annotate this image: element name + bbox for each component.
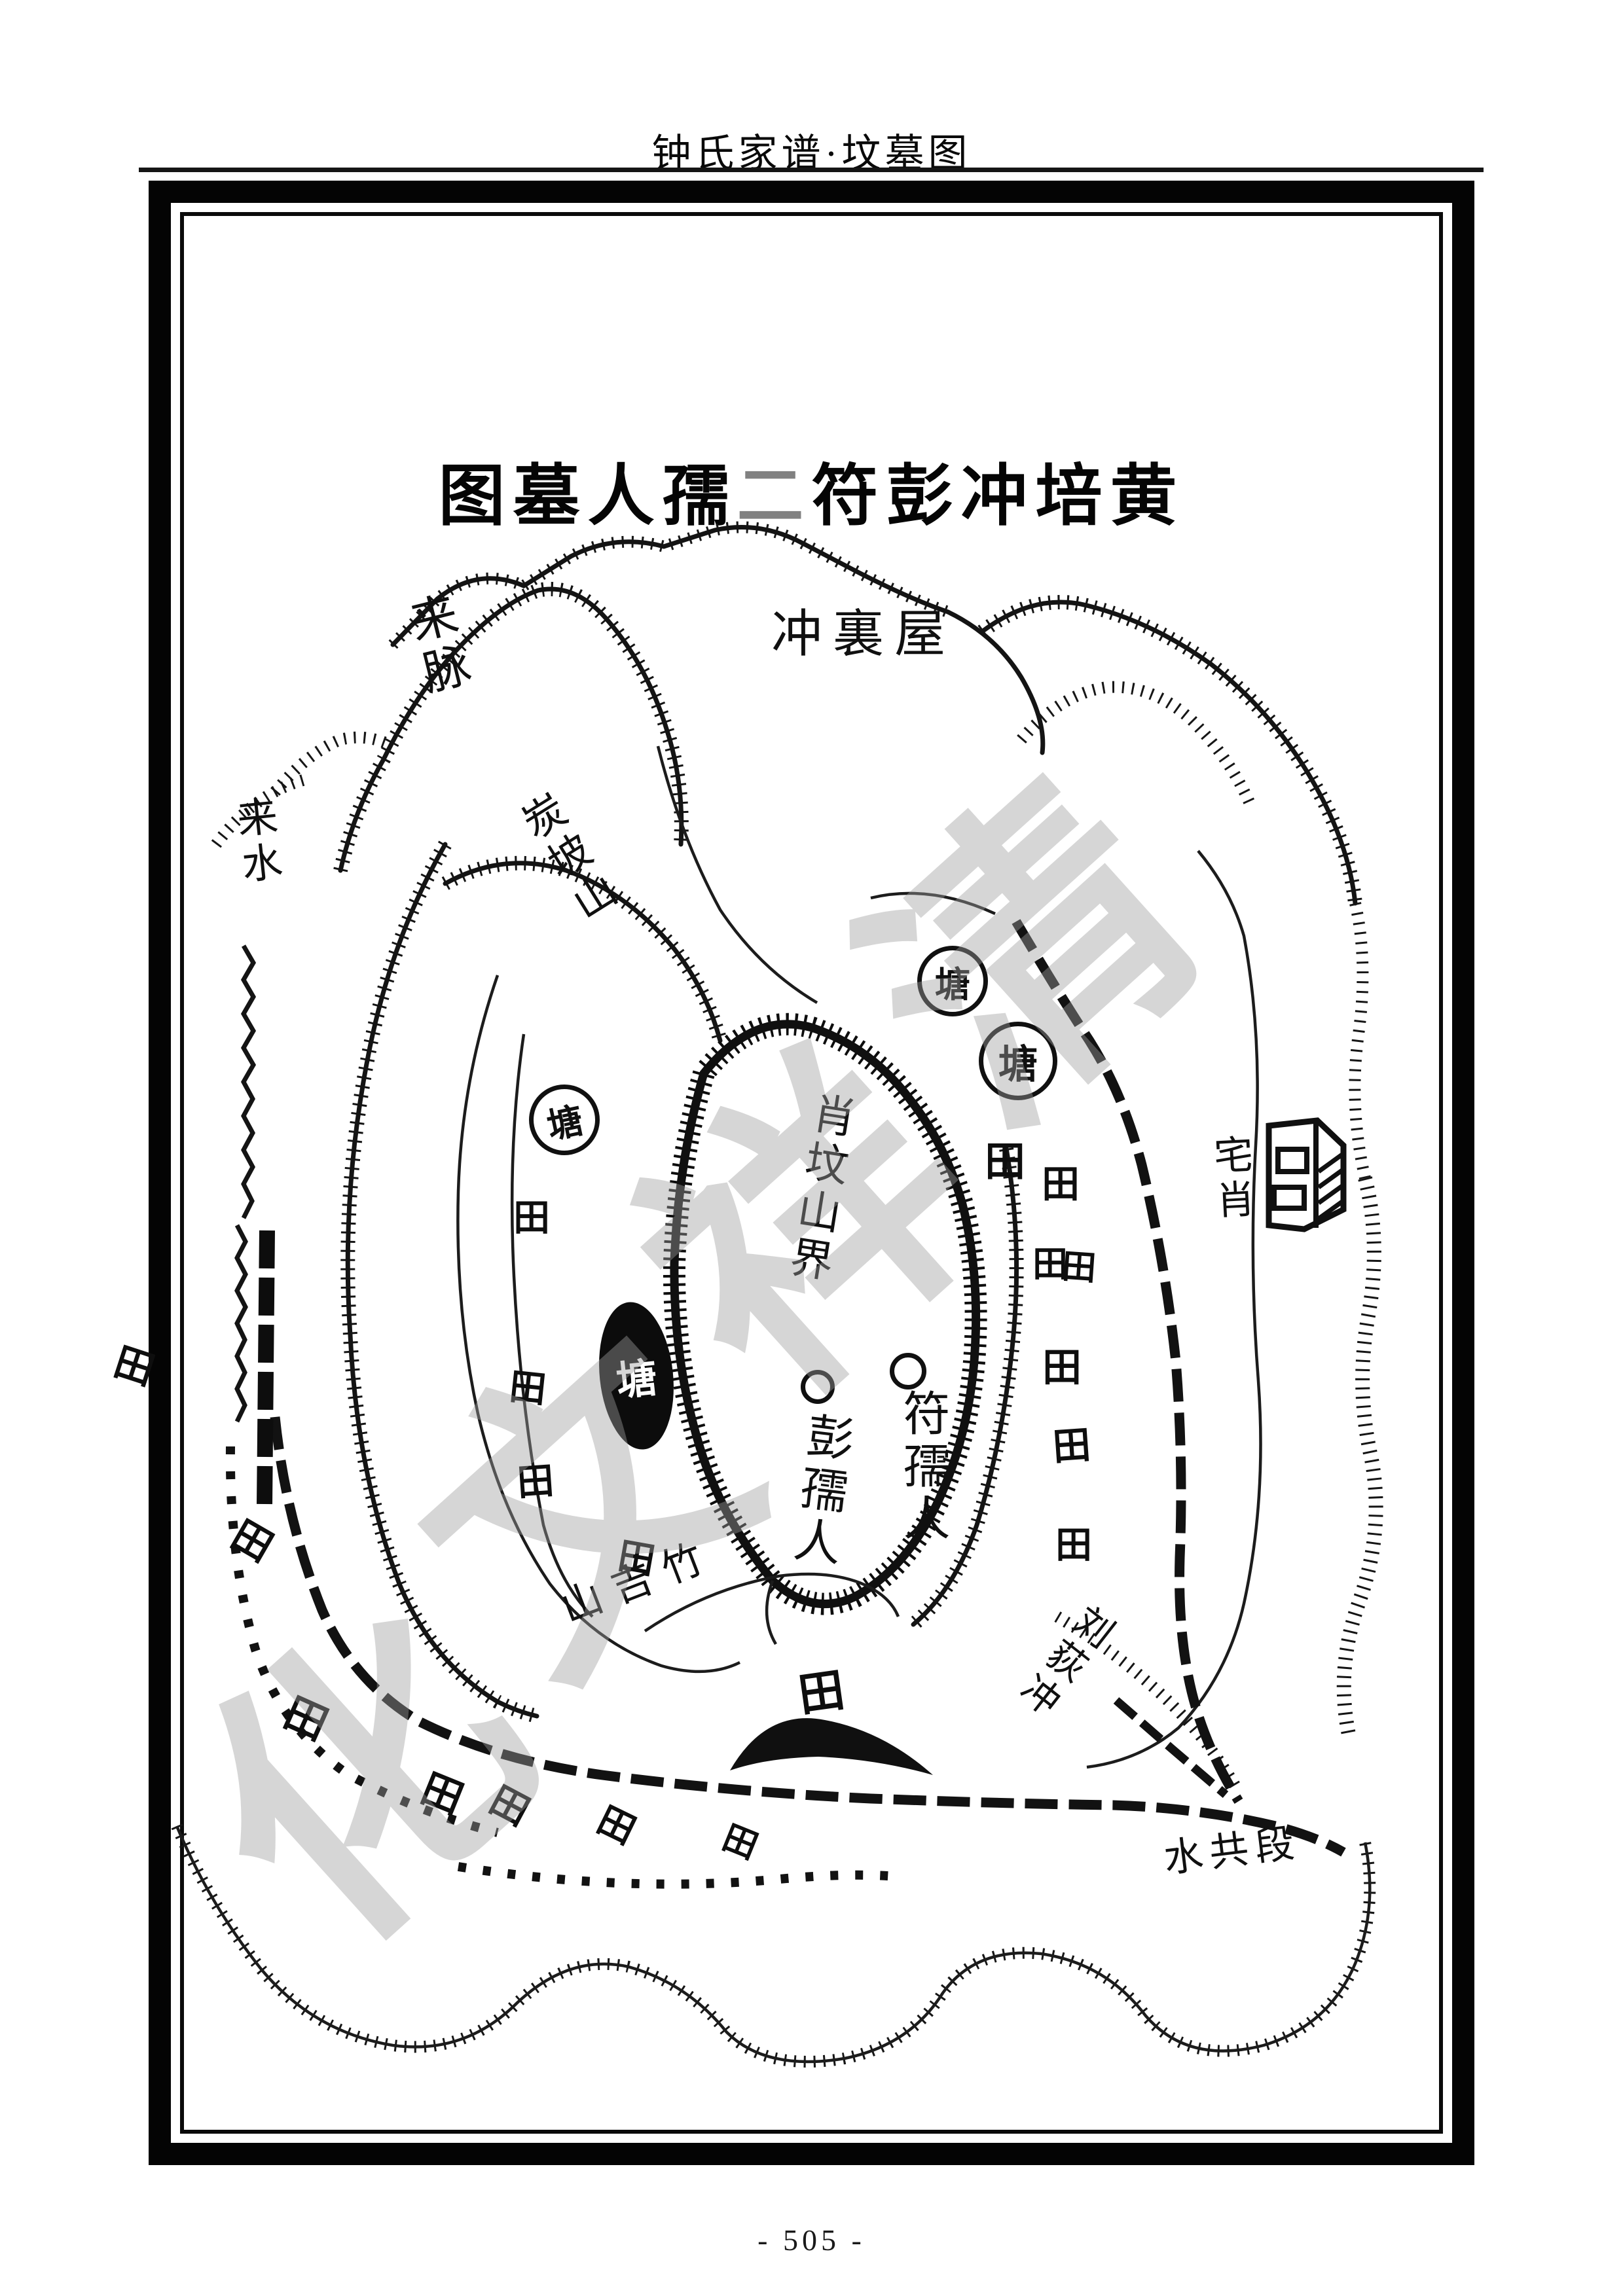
ridge-right-range-crest — [982, 602, 1355, 903]
water-zigzag-upper — [244, 946, 253, 1218]
water-zigzag-lower — [237, 1225, 246, 1422]
pond-circle-1: 塘 — [917, 946, 988, 1016]
field-marker: 田 — [795, 1668, 847, 1719]
field-marker: 田 — [1061, 1250, 1097, 1287]
field-marker: 田 — [1055, 1528, 1092, 1564]
water-dashed-bar — [264, 1230, 267, 1505]
field-marker: 田 — [513, 1200, 550, 1237]
pond-glyph: 塘 — [541, 1091, 587, 1149]
field-marker: 田 — [615, 1538, 658, 1581]
label-laishui-incoming-water: 来水 — [221, 794, 289, 891]
field-marker: 田 — [985, 1142, 1025, 1183]
grave-circle-fu — [890, 1353, 926, 1390]
pond-glyph-white: 塘 — [613, 1344, 659, 1407]
ridge-laimai-peak-crest — [340, 589, 682, 870]
label-xiao-residence: 宅肖 — [1201, 1133, 1262, 1225]
ridge-laimai-peak — [340, 589, 682, 870]
field-marker: 田 — [516, 1463, 555, 1502]
dark-mound — [730, 1718, 933, 1775]
field-marker: 田 — [1051, 1426, 1092, 1467]
house-icon — [1269, 1121, 1343, 1229]
ridge-right-edge-lower — [1344, 1178, 1376, 1734]
ridge-right-edge-upper — [1355, 903, 1365, 1178]
pond-circle-2: 塘 — [979, 1022, 1057, 1100]
field-marker: 田 — [507, 1369, 548, 1409]
ring-left-arm — [348, 844, 537, 1716]
contour-valley-top — [871, 893, 995, 914]
field-marker: 田 — [1042, 1166, 1080, 1204]
page-number: - 505 - — [0, 2223, 1623, 2257]
pond-glyph: 塘 — [935, 956, 970, 1007]
label-grave-fu-ruren: 符孺人 — [888, 1389, 957, 1546]
scanned-genealogy-page: 钟氏家谱·坟墓图 图墓人孺二符彭冲培黄 — [0, 0, 1623, 2296]
grave-circle-peng — [801, 1370, 835, 1404]
ridge-right-inner-peak — [1021, 687, 1250, 805]
pond-glyph: 塘 — [998, 1033, 1038, 1090]
water-triangles-bottom — [458, 1867, 903, 1884]
ridge-right-range — [982, 602, 1355, 903]
ring-left-arm-crest — [348, 844, 537, 1716]
water-triangles-corner — [230, 1446, 498, 1833]
label-chonliwu-valley: 冲裏屋 — [771, 593, 956, 666]
field-marker: 田 — [1042, 1348, 1082, 1388]
